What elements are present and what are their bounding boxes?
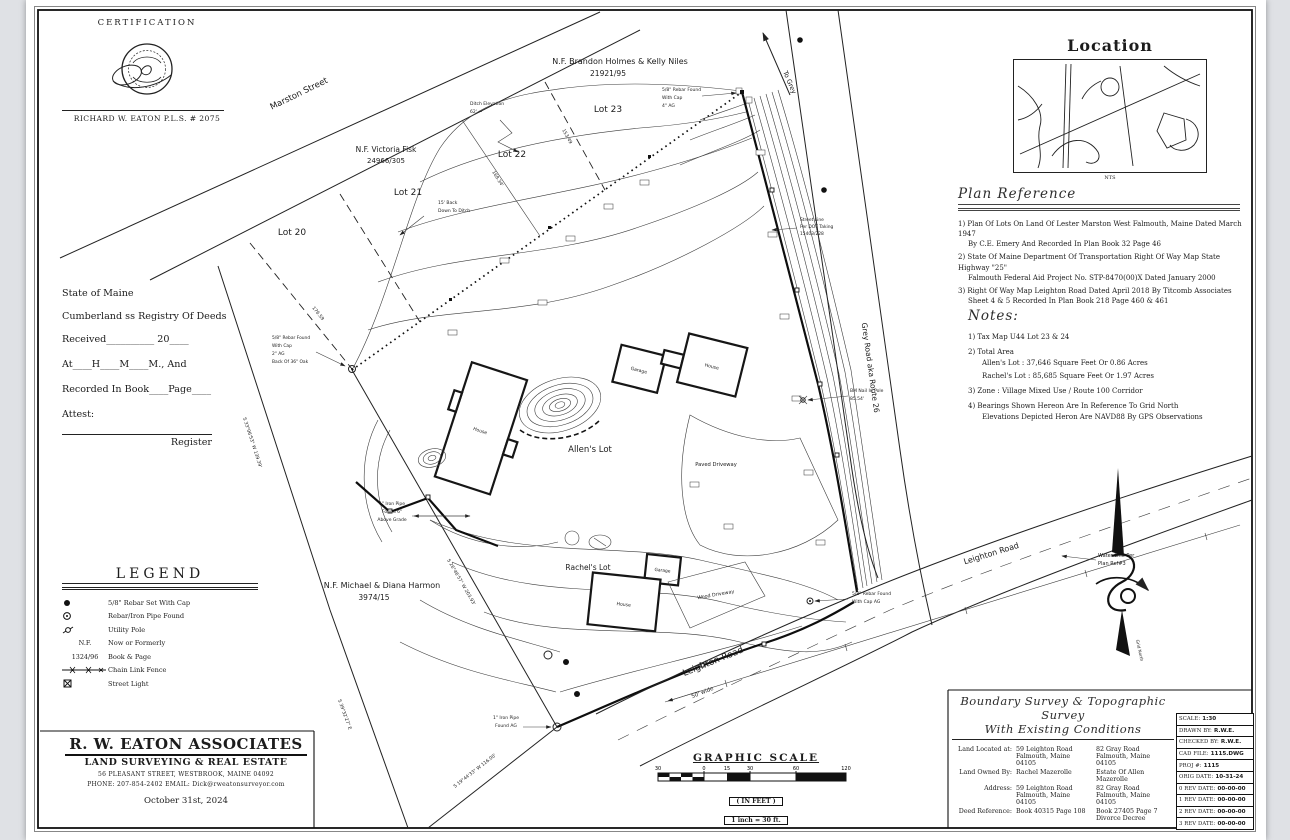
rebar-found-se-note: With Cap AG xyxy=(852,599,881,605)
surveyor-seal xyxy=(110,32,184,106)
notes-block: Notes: 1) Tax Map U44 Lot 23 & 24 2) Tot… xyxy=(968,308,1252,425)
survey-plan-scan: .t{font-family:"DejaVu Sans",sans-serif;… xyxy=(0,0,1290,840)
plan-reference-item: 3) Right Of Way Map Leighton Road Dated … xyxy=(958,286,1252,296)
certification-title: CERTIFICATION xyxy=(52,18,242,28)
title-rule xyxy=(952,739,1174,740)
rachels-lot-label: Rachel's Lot xyxy=(565,563,610,572)
rachel-house: Garage House xyxy=(587,549,680,634)
allens-lot-label: Allen's Lot xyxy=(568,445,612,455)
note-item: 1) Tax Map U44 Lot 23 & 24 xyxy=(968,332,1252,343)
plan-reference-item: 2) State Of Maine Department Of Transpor… xyxy=(958,252,1252,272)
deed-a: Book 40315 Page 108 xyxy=(1014,807,1094,823)
rebar-found-north-note: 4" AG xyxy=(662,103,675,109)
ditch-note: 62' ← xyxy=(470,109,482,115)
info-row: CHECKED BY:R.W.E. xyxy=(1176,736,1254,748)
legend-item: N.F. Now or Formerly xyxy=(62,637,258,651)
info-row: PROJ #:1115 xyxy=(1176,759,1254,771)
iron-pipe-mid-note: Found 6" xyxy=(382,509,402,515)
plan-reference-item: Sheet 4 & 5 Recorded In Plan Book 218 Pa… xyxy=(968,296,1252,306)
owner-fisk-bookpage: 24966/305 xyxy=(367,157,405,165)
dot-taking-note: Street Line xyxy=(800,217,824,223)
rebar-found-west-note: With Cap xyxy=(272,343,292,349)
grey-road-house: House xyxy=(658,329,748,397)
address-b2: Falmouth, Maine 04105 xyxy=(1096,792,1172,806)
bank-note: 15' Back xyxy=(438,200,458,206)
marston-street-label: Marston Street xyxy=(269,76,331,113)
legend-item: Chain Link Fence xyxy=(62,664,258,678)
scale-bar: 30 0 15 30 60 120 xyxy=(650,764,854,788)
drawing-info-table: SCALE:1:30 DRAWN BY:R.W.E. CHECKED BY:R.… xyxy=(1176,713,1254,830)
info-value: 00-00-00 xyxy=(1217,821,1245,827)
rebar-found-west-note: Back Of 36" Oak xyxy=(272,359,309,365)
plan-reference-block: Plan Reference 1) Plan Of Lots On Land O… xyxy=(958,186,1252,309)
legend-block: LEGEND 5/8" Rebar Set With Cap Rebar/Iro… xyxy=(62,566,258,691)
plan-reference-title: Plan Reference xyxy=(958,186,1252,202)
rebar-found-se-note: 5/8" Rebar Found xyxy=(852,591,891,597)
location-inset: Location NTS xyxy=(1013,36,1207,181)
note-item: 4) Bearings Shown Hereon Are In Referenc… xyxy=(968,401,1252,412)
owner-fisk-label: N.F. Victoria Fisk xyxy=(356,145,417,154)
rebar-found-west-note: 2" AG xyxy=(272,351,285,357)
lot21-label: Lot 21 xyxy=(394,188,422,198)
located-a1: 59 Leighton Road xyxy=(1016,746,1092,753)
ditch-note: Ditch Elevation xyxy=(470,101,504,107)
address-b1: 82 Gray Road xyxy=(1096,785,1172,792)
street-light-icon xyxy=(62,678,108,689)
legend-item: Utility Pole xyxy=(62,623,258,637)
graphic-scale-block: GRAPHIC SCALE 30 0 15 30 60 120 ( IN FEE… xyxy=(650,752,862,826)
owner-holmes-bookpage: 21921/95 xyxy=(590,69,626,78)
info-label: 0 REV DATE: xyxy=(1179,786,1215,792)
rebar-found-north-note: 5/8" Rebar Found xyxy=(662,87,701,93)
info-value: 1:30 xyxy=(1202,716,1216,722)
info-value: 10-31-24 xyxy=(1215,774,1243,780)
notes-title: Notes: xyxy=(968,308,1252,324)
lot-lines xyxy=(250,82,605,369)
info-label: DRAWN BY: xyxy=(1179,728,1212,734)
plan-reference-item: By C.E. Emery And Recorded In Plan Book … xyxy=(968,239,1252,249)
rebar-found-north-note: With Cap xyxy=(662,95,683,101)
registry-block: State of Maine Cumberland ss Registry Of… xyxy=(62,288,272,452)
register-signature-line: Register xyxy=(62,434,212,448)
plan-date: October 31st, 2024 xyxy=(58,796,314,806)
located-a2: Falmouth, Maine 04105 xyxy=(1016,753,1092,767)
located-b1: 82 Gray Road xyxy=(1096,746,1172,753)
scale-ratio: 1 inch = 30 ft. xyxy=(724,816,788,825)
utility-pole-icon xyxy=(62,625,108,635)
location-title: Location xyxy=(1013,36,1207,55)
owner-harmon-bookpage: 3974/15 xyxy=(358,593,389,602)
info-value: 00-00-00 xyxy=(1217,809,1245,815)
owned-label: Land Owned By: xyxy=(952,768,1014,784)
info-row: ORIG DATE:10-31-24 xyxy=(1176,771,1254,783)
info-value: 1115 xyxy=(1204,763,1220,769)
iron-pipe-mid-note: Above Grade xyxy=(377,517,407,523)
info-label: 1 REV DATE: xyxy=(1179,797,1215,803)
dot-taking-note: 15403/228 xyxy=(800,231,824,237)
info-row: 0 REV DATE:00-00-00 xyxy=(1176,783,1254,795)
info-label: 3 REV DATE: xyxy=(1179,821,1215,827)
firm-name: R. W. EATON ASSOCIATES xyxy=(65,735,307,756)
info-row: 2 REV DATE:00-00-00 xyxy=(1176,806,1254,818)
info-row: 3 REV DATE:00-00-00 xyxy=(1176,817,1254,830)
legend-item: 1324/96 Book & Page xyxy=(62,650,258,664)
legend-label: Rebar/Iron Pipe Found xyxy=(108,612,184,620)
legend-label: Chain Link Fence xyxy=(108,666,166,674)
info-row: DRAWN BY:R.W.E. xyxy=(1176,725,1254,737)
graphic-scale-title: GRAPHIC SCALE xyxy=(650,752,862,764)
benchmark-note: BM Nail In Pole xyxy=(850,388,884,394)
registry-line: Recorded In Book____Page____ xyxy=(62,384,272,395)
plan-title-line1: Boundary Survey & Topographic Survey xyxy=(952,694,1174,722)
owned-a: Rachel Mazerolle xyxy=(1014,768,1094,784)
plan-reference-item: Falmouth Federal Aid Project No. STP-847… xyxy=(968,273,1252,283)
info-row: SCALE:1:30 xyxy=(1176,713,1254,725)
title-block: Boundary Survey & Topographic Survey Wit… xyxy=(952,694,1174,823)
water-line-note: Plan Ref#3 xyxy=(1098,561,1126,567)
plan-reference-item: 1) Plan Of Lots On Land Of Lester Marsto… xyxy=(958,219,1252,239)
info-label: SCALE: xyxy=(1179,716,1200,722)
legend-label: Utility Pole xyxy=(108,626,145,634)
surveyor-name: RICHARD W. EATON P.L.S. # 2075 xyxy=(52,114,242,123)
deed-label: Deed Reference: xyxy=(952,807,1014,823)
dot-taking-note: Per DOT Taking xyxy=(800,224,833,230)
dim-176: 176.59 xyxy=(310,305,325,321)
registry-line: At____H____M____M., And xyxy=(62,359,272,370)
title-block-table: Land Located at: 59 Leighton Road Falmou… xyxy=(952,745,1174,823)
info-label: PROJ #: xyxy=(1179,763,1202,769)
svg-text:30: 30 xyxy=(655,766,661,772)
lot20-label: Lot 20 xyxy=(278,228,306,238)
scale-units: ( IN FEET ) xyxy=(729,797,782,806)
info-value: R.W.E. xyxy=(1221,739,1241,745)
registry-line: Attest: xyxy=(62,409,272,420)
location-map xyxy=(1014,60,1206,172)
nf-key: N.F. xyxy=(62,639,108,647)
grid-north-label: Grid North xyxy=(1135,639,1145,662)
info-row: 1 REV DATE:00-00-00 xyxy=(1176,794,1254,806)
legend-label: Book & Page xyxy=(108,653,151,661)
info-value: 1115.DWG xyxy=(1211,751,1244,757)
monuments xyxy=(349,90,814,731)
bearing-se: S 39°32'27" E xyxy=(336,699,353,731)
note-item: Rachel's Lot : 85,685 Square Feet Or 1.9… xyxy=(982,371,1252,382)
note-item: Elevations Depicted Heron Are NAVD88 By … xyxy=(982,412,1252,423)
bank-note: Down To Ditch xyxy=(438,208,470,214)
book-page-key: 1324/96 xyxy=(62,653,108,661)
address-label: Address: xyxy=(952,784,1014,807)
firm-block: R. W. EATON ASSOCIATES LAND SURVEYING & … xyxy=(58,734,314,806)
lot23-label: Lot 23 xyxy=(594,105,622,115)
chain-link-icon xyxy=(62,665,108,675)
location-scale-note: NTS xyxy=(1013,175,1207,181)
deed-b2: Divorce Decree xyxy=(1096,815,1172,822)
registry-line: State of Maine xyxy=(62,288,272,299)
info-label: ORIG DATE: xyxy=(1179,774,1213,780)
note-item: 3) Zone : Village Mixed Use / Route 100 … xyxy=(968,386,1252,397)
fence-boundary xyxy=(356,92,857,727)
bearing-west: S 26°46'57" W 203.93' xyxy=(445,558,476,606)
located-label: Land Located at: xyxy=(952,745,1014,768)
firm-address: 56 PLEASANT STREET, WESTBROOK, MAINE 040… xyxy=(58,771,314,778)
paved-driveway-label: Paved Driveway xyxy=(695,462,737,468)
registry-line: Received__________ 20____ xyxy=(62,334,272,345)
driveways xyxy=(668,415,838,628)
signature-rule xyxy=(62,110,224,111)
firm-contact: PHONE: 207-854-2402 EMAIL: Dick@rweatons… xyxy=(58,781,314,788)
info-value: R.W.E. xyxy=(1214,728,1234,734)
address-a1: 59 Leighton Road xyxy=(1016,785,1092,792)
legend-title: LEGEND xyxy=(62,566,258,582)
wood-driveway-label: Wood Driveway xyxy=(697,589,735,601)
benchmark-note: 85.54' xyxy=(850,396,864,402)
legend-item: 5/8" Rebar Set With Cap xyxy=(62,596,258,610)
info-label: CAD FILE: xyxy=(1179,751,1209,757)
address-a2: Falmouth, Maine 04105 xyxy=(1016,792,1092,806)
legend-label: Street Light xyxy=(108,680,148,688)
rebar-set-icon xyxy=(62,598,108,608)
plan-title-line2: With Existing Conditions xyxy=(952,722,1174,736)
owned-b: Estate Of Allen Mazerolle xyxy=(1094,768,1174,784)
note-item: 2) Total Area xyxy=(968,347,1252,358)
svg-text:120: 120 xyxy=(841,766,851,772)
iron-pipe-sw-note: 1" Iron Pipe xyxy=(493,715,519,721)
info-row: CAD FILE:1115.DWG xyxy=(1176,748,1254,760)
owner-holmes-label: N.F. Brandon Holmes & Kelly Niles xyxy=(552,57,688,66)
firm-tagline: LAND SURVEYING & REAL ESTATE xyxy=(58,757,314,768)
rebar-found-west-note: 5/8" Rebar Found xyxy=(272,335,310,341)
iron-pipe-mid-note: 1" Iron Pipe xyxy=(379,501,405,507)
deed-b1: Book 27405 Page 7 xyxy=(1096,808,1172,815)
legend-item: Rebar/Iron Pipe Found xyxy=(62,610,258,624)
pipe-found-icon xyxy=(62,611,108,621)
owner-harmon-label: N.F. Michael & Diana Harmon xyxy=(324,581,441,590)
info-label: CHECKED BY: xyxy=(1179,739,1219,745)
note-item: Allen's Lot : 37,646 Square Feet Or 0.86… xyxy=(982,358,1252,369)
located-b2: Falmouth, Maine 04105 xyxy=(1096,753,1172,767)
dim-153: 153.49 xyxy=(560,128,573,145)
svg-text:15: 15 xyxy=(724,766,730,772)
allen-house: House xyxy=(427,360,536,498)
legend-label: Now or Formerly xyxy=(108,639,165,647)
bearing-bottom: S 19°44'33" W 116.00' xyxy=(453,753,498,790)
location-map-frame xyxy=(1013,59,1207,173)
info-value: 00-00-00 xyxy=(1217,786,1245,792)
leighton-road-label: Leighton Road xyxy=(681,645,745,678)
certification-block: CERTIFICATION RICHARD W. EATON P.L.S. # … xyxy=(52,18,242,123)
legend-label: 5/8" Rebar Set With Cap xyxy=(108,599,190,607)
info-label: 2 REV DATE: xyxy=(1179,809,1215,815)
legend-item: Street Light xyxy=(62,677,258,691)
iron-pipe-sw-note: Found AG xyxy=(495,723,517,729)
registry-line: Cumberland ss Registry Of Deeds xyxy=(62,311,272,322)
plan-reference-rule xyxy=(958,204,1240,211)
lot22-label: Lot 22 xyxy=(498,150,526,160)
legend-rule xyxy=(62,583,258,590)
info-value: 00-00-00 xyxy=(1217,797,1245,803)
grey-road-garage: Garage xyxy=(612,345,666,393)
